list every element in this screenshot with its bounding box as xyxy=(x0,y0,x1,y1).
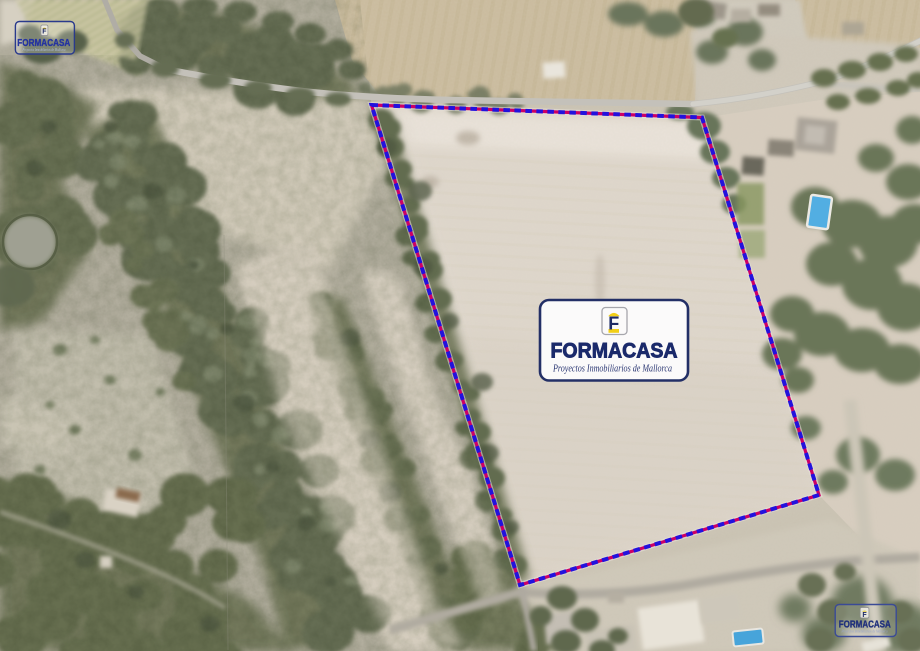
svg-text:FORMACASA: FORMACASA xyxy=(551,339,678,363)
svg-text:Proyectos Inmobiliarios de Mal: Proyectos Inmobiliarios de Mallorca xyxy=(22,47,66,52)
svg-text:F: F xyxy=(862,612,867,619)
svg-text:F: F xyxy=(608,314,619,334)
svg-text:Proyectos Inmobiliarios de Mal: Proyectos Inmobiliarios de Mallorca xyxy=(552,363,672,374)
svg-text:Proyectos Inmobiliarios de Mal: Proyectos Inmobiliarios de Mallorca xyxy=(841,628,888,633)
svg-text:F: F xyxy=(42,29,47,36)
